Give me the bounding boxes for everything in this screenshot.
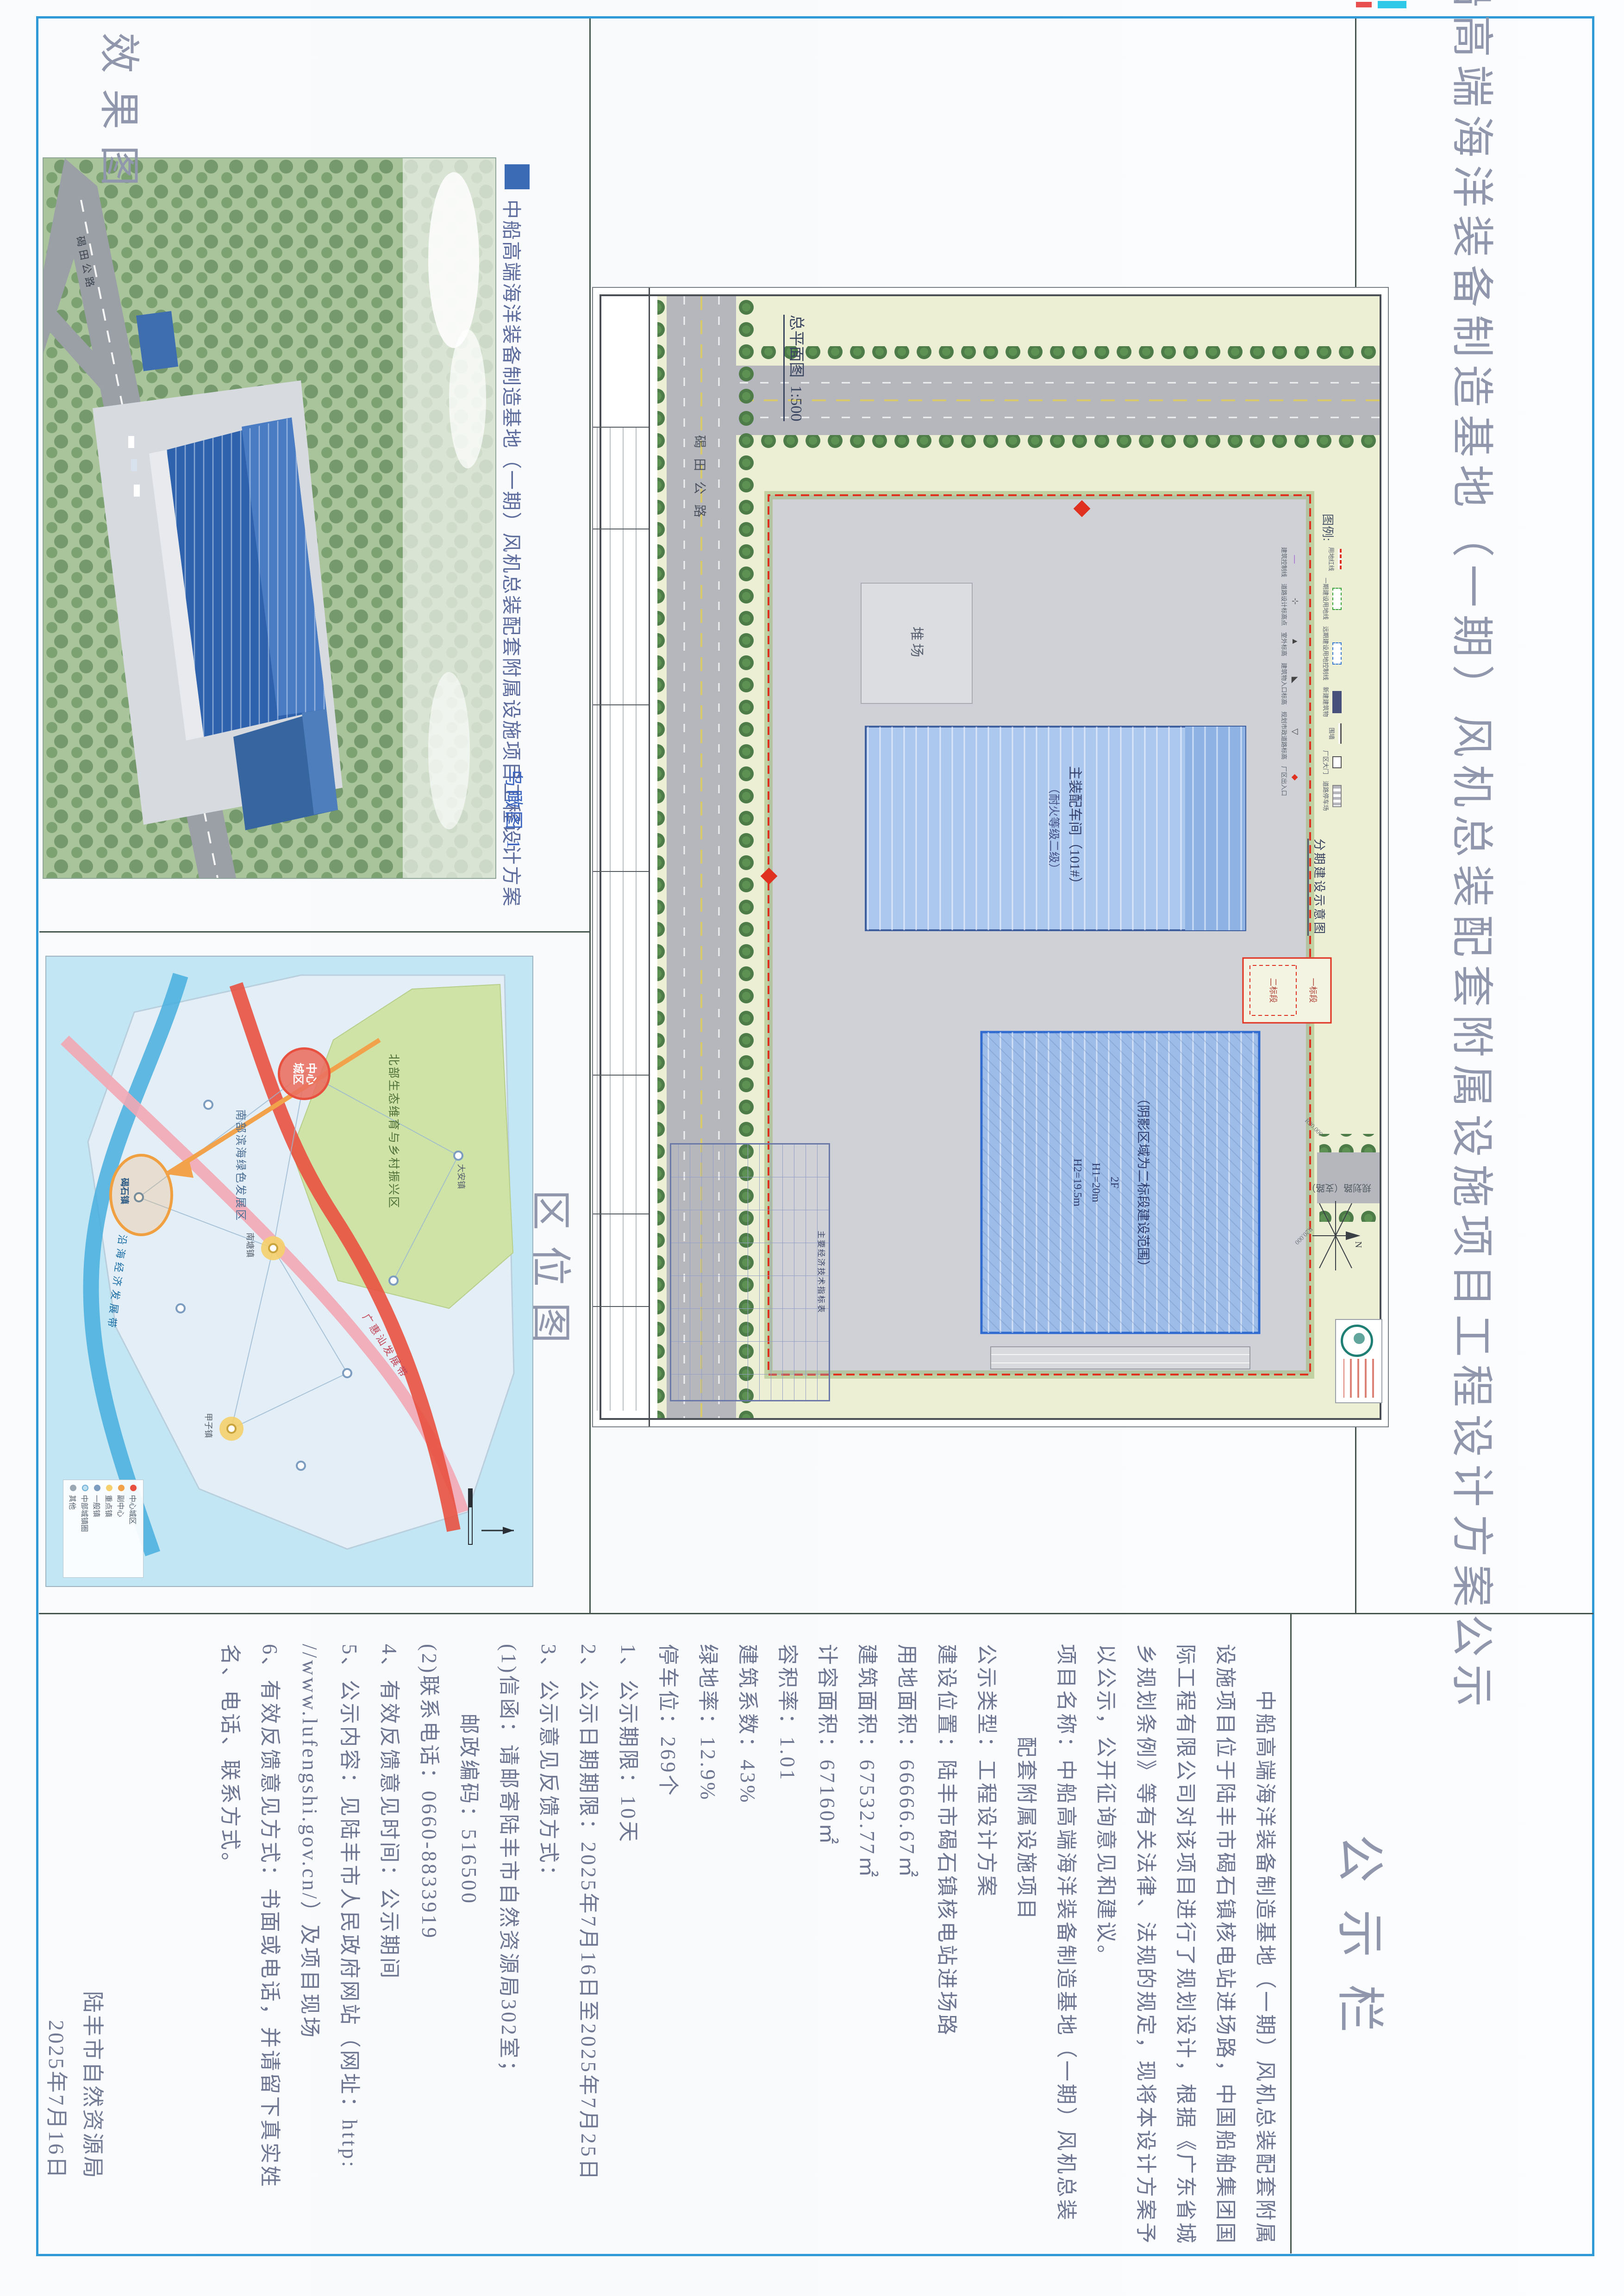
map-legend: 中心城区副中心重点镇一般镇中部城镇圈其他: [63, 1480, 144, 1578]
notice-line: 5、公示内容：见陆丰市人民政府网站（网址：http:: [330, 1644, 369, 2250]
notice-line: (2)联系电话：0660-8833919: [409, 1644, 449, 2250]
noticeboard-underline: [1290, 1614, 1292, 2253]
svg-text:主装配车间（101#）: 主装配车间（101#）: [1067, 766, 1082, 891]
notice-line: (1)信函：请邮寄陆丰市自然资源局302室；: [489, 1644, 529, 2250]
landscape-drawing-sheet: 中船高端海洋装备制造基地（一期）风机总装配套附属设施项目工程设计方案公示 公示栏…: [0, 0, 1624, 2296]
title-block-cell: [593, 871, 649, 1076]
legend-item: 新建建筑物: [1322, 687, 1342, 717]
aerial-render-svg: 碣田公路: [44, 158, 495, 878]
band-divider-vertical: [39, 931, 590, 933]
notice-line: 配套附属设施项目: [1006, 1644, 1046, 2250]
notice-line: 建筑面积：67532.77㎡: [847, 1644, 887, 2250]
legend-item: 规划市政道路标高: [1280, 711, 1300, 759]
map-town2-label: 南塘镇: [244, 1232, 256, 1257]
notice-line: 设施项目位于陆丰市碣石镇核电站进场路，中国船舶集团国: [1206, 1644, 1245, 2250]
legend-item: 建筑控制线: [1280, 547, 1300, 577]
location-panel-label: 区位图: [525, 1189, 583, 1359]
legend-item: 道路停车场: [1322, 781, 1342, 811]
band-divider-horizontal: [589, 19, 591, 1614]
notice-line: 1、公示期限：10天: [608, 1644, 648, 2250]
legend-item: 室外标高: [1280, 632, 1300, 656]
notice-line: 名、电话、联系方式。: [210, 1644, 250, 2250]
notice-line: 乡规划条例》等有关法律、法规的规定，现将本设计方案予: [1126, 1644, 1166, 2250]
signature-date: 2025年7月16日: [38, 1712, 74, 2180]
page-title: 中船高端海洋装备制造基地（一期）风机总装配套附属设施项目工程设计方案公示: [1360, 19, 1592, 1611]
economic-indicators-table: 主要经济技术指标表: [670, 1143, 830, 1401]
notice-line: 容积率：1.01: [768, 1644, 807, 2250]
registration-mark-cyan: [1378, 1, 1406, 8]
map-region-north-label: 北部生态维育与乡村振兴区: [386, 1054, 403, 1209]
notice-line: 以公示，公开征询意见和建议。: [1086, 1644, 1126, 2250]
notice-line: 3、公示意见反馈方式：: [529, 1644, 568, 2250]
notice-line: 公示类型：工程设计方案: [967, 1644, 1006, 2250]
map-legend-item: 其他: [67, 1485, 79, 1573]
stamp-text-lines: [1343, 1359, 1374, 1398]
title-block-cell: [593, 529, 649, 705]
title-block-cell: [593, 427, 649, 529]
map-legend-item: 中心城区: [127, 1485, 139, 1573]
svg-text:（耐火等级二级）: （耐火等级二级）: [1047, 782, 1060, 875]
legend-item: 用地红线: [1322, 547, 1342, 571]
site-plan-sheet: 主装配车间（101#） （耐火等级二级） （阴影区域为二标段建设范围） 2F H…: [592, 287, 1389, 1427]
notice-line: 停车位：269个: [648, 1644, 688, 2250]
legend-item: 建筑物入口标高: [1280, 663, 1300, 705]
location-map-image: 北部生态维育与乡村振兴区 南部滨海绿色发展区 沿海经济发展带 广惠汕发展带 中心…: [45, 956, 533, 1587]
notice-line: 4、有效反馈意见时间：公示期间: [369, 1644, 409, 2250]
notice-line: //www.lufengshi.gov.cn/）及项目现场: [290, 1644, 330, 2250]
map-legend-item: 重点镇: [103, 1485, 115, 1573]
svg-text:碣田公路: 碣田公路: [692, 435, 707, 528]
scanned-notice-page: 中船高端海洋装备制造基地（一期）风机总装配套附属设施项目工程设计方案公示 公示栏…: [0, 0, 1624, 2296]
notice-line: 2、公示日期期限：2025年7月16日至2025年7月25日: [568, 1644, 608, 2250]
signature-agency: 陆丰市自然资源局: [74, 1712, 110, 2180]
divider-vertical: [39, 1613, 1593, 1614]
render-caption: 鸟瞰图 1: [502, 768, 529, 852]
render-panel-label: 效果图: [93, 32, 152, 202]
title-block-cell: [593, 1213, 649, 1307]
legend-item: 厂区出入口: [1280, 766, 1300, 796]
noticeboard-header: 公示栏: [1300, 1615, 1430, 2252]
economic-indicators-table-title: 主要经济技术指标表: [816, 1145, 828, 1400]
map-center-city-label: 中心城区: [291, 1060, 317, 1088]
aerial-render-image: 碣田公路: [43, 157, 496, 879]
notice-line: 际工程有限公司对该项目进行了规划设计，根据《广东省城: [1166, 1644, 1206, 2250]
legend-item: 道路设计标高点: [1280, 584, 1300, 626]
notice-body: 中船高端海洋装备制造基地（一期）风机总装配套附属设施项目位于陆丰市碣石镇核电站进…: [210, 1644, 1285, 2250]
registration-mark-red: [1356, 2, 1372, 7]
plan-title: 总平面图: [787, 315, 805, 378]
phase-inset-title: 分期建设示意图: [1307, 839, 1329, 936]
svg-text:2F: 2F: [1108, 1176, 1120, 1188]
map-region-south-label: 南部滨海绿色发展区: [234, 1109, 250, 1222]
notice-line: 计容面积：67160㎡: [807, 1644, 847, 2250]
svg-text:H2=19.5m: H2=19.5m: [1071, 1158, 1083, 1207]
legend-item: 一期建设用地线: [1322, 578, 1342, 620]
svg-text:N: N: [1353, 1241, 1363, 1248]
title-block-cell: [593, 1075, 649, 1214]
project-logo-icon: [505, 164, 530, 189]
design-institute-stamp: [1335, 1319, 1382, 1403]
svg-text:一标段: 一标段: [1308, 978, 1318, 1003]
svg-text:（阴影区域为二标段建设范围）: （阴影区域为二标段建设范围）: [1136, 1092, 1150, 1273]
plan-title-scale: 总平面图 1:500: [783, 315, 809, 421]
plan-legend-row1: 用地红线一期建设用地线远期建设用地控制线新建建筑物围墙厂区大门道路停车场: [1322, 547, 1342, 811]
map-town1-label: 大安镇: [456, 1164, 468, 1189]
plan-legend-title: 图例:: [1320, 514, 1337, 541]
map-town3-label: 甲子镇: [203, 1413, 215, 1438]
svg-text:堆场: 堆场: [909, 627, 924, 660]
notice-line: 建设位置：陆丰市碣石镇核电站进场路: [927, 1644, 967, 2250]
notice-line: 项目名称：中船高端海洋装备制造基地（一期）风机总装: [1046, 1644, 1086, 2250]
sheet-title-block: [593, 288, 650, 1426]
notice-line: 用地面积：66666.67㎡: [887, 1644, 927, 2250]
notice-line: 6、有效反馈意见方式：书面或电话，并请留下真实姓: [250, 1644, 290, 2250]
legend-item: 厂区大门: [1322, 750, 1342, 774]
plan-scale: 1:500: [787, 386, 805, 421]
title-block-cell: [593, 704, 649, 872]
notice-line: 邮政编码：516500: [449, 1644, 489, 2250]
legend-item: 远期建设用地控制线: [1322, 626, 1342, 680]
svg-text:规划路（支路）: 规划路（支路）: [1306, 1182, 1371, 1193]
svg-text:H1=20m: H1=20m: [1090, 1163, 1102, 1202]
notice-line: 中船高端海洋装备制造基地（一期）风机总装配套附属: [1245, 1644, 1285, 2250]
title-block-cell: [593, 1306, 649, 1411]
map-project-town-label: 碣石镇: [119, 1178, 131, 1204]
map-legend-item: 副中心: [115, 1485, 127, 1573]
notice-line: 绿地率：12.9%: [688, 1644, 728, 2250]
legend-item: 围墙: [1322, 723, 1342, 744]
map-legend-item: 一般镇: [91, 1485, 103, 1573]
map-center-city-badge: 中心城区: [278, 1047, 331, 1100]
stamp-roundel-core: [1354, 1333, 1365, 1344]
plan-legend-row2: 建筑控制线道路设计标高点室外标高建筑物入口标高规划市政道路标高厂区出入口: [1280, 547, 1300, 796]
notice-line: 建筑系数：43%: [728, 1644, 768, 2250]
map-legend-item: 中部城镇圈: [79, 1485, 91, 1573]
notice-signature: 陆丰市自然资源局 2025年7月16日: [38, 1712, 110, 2180]
svg-text:二标段: 二标段: [1268, 978, 1278, 1003]
